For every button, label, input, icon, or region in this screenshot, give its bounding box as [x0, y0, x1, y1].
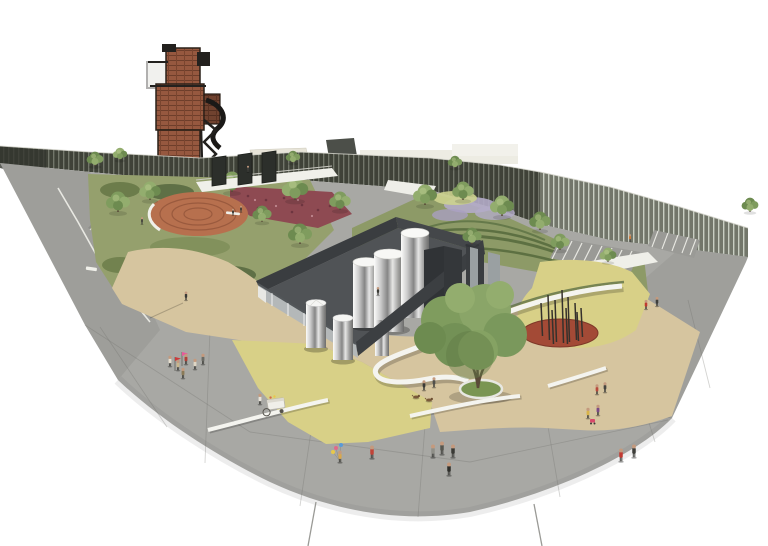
tower-top-box [166, 48, 200, 86]
display-panel [212, 156, 226, 186]
display-panel [262, 151, 276, 183]
short-silo [306, 303, 326, 348]
tower-mid-box [156, 84, 204, 130]
rendering-canvas [0, 0, 768, 546]
architectural-rendering [0, 0, 768, 546]
display-panel [238, 153, 252, 185]
short-silo [333, 318, 353, 360]
